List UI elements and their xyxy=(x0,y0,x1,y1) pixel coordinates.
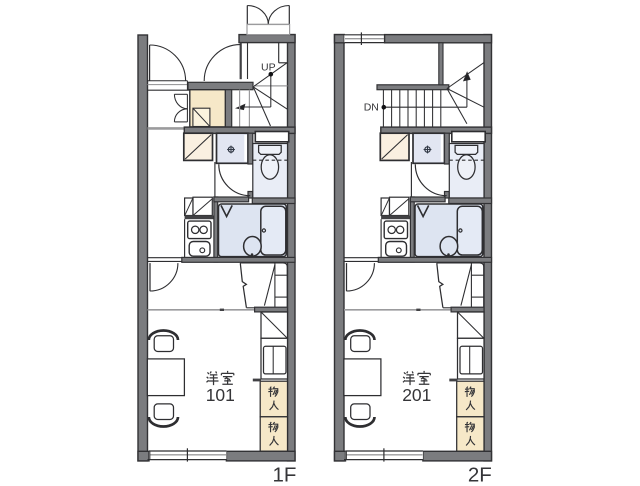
svg-text:UP: UP xyxy=(261,62,276,74)
svg-text:2F: 2F xyxy=(468,464,492,486)
svg-text:1F: 1F xyxy=(273,464,297,486)
svg-text:101: 101 xyxy=(206,385,235,405)
svg-text:DN: DN xyxy=(364,102,379,114)
svg-text:201: 201 xyxy=(402,385,431,405)
